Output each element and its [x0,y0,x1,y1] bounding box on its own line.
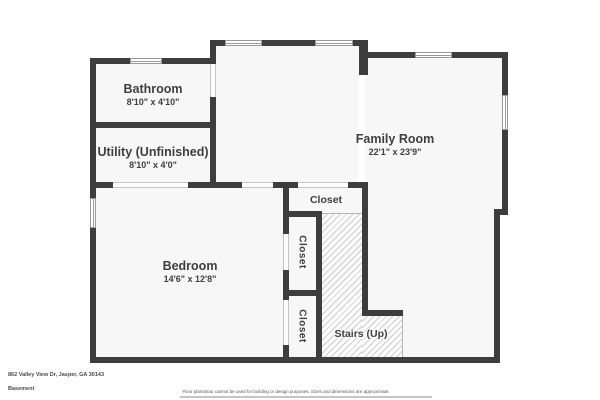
disclaimer-text: Floor plans/tour cannot be used for buil… [182,389,389,394]
family-room-label: Family Room [356,132,435,146]
closet-bottom-label: Closet [297,309,308,343]
bathroom-label: Bathroom [123,82,182,96]
wall-bottom [90,357,500,363]
stairs-label: Stairs (Up) [334,328,387,340]
closet-top-label: Closet [310,194,342,206]
family-room-floor-upper-right [365,56,505,186]
window-family-top [415,52,452,58]
wall-stairs-right [362,182,368,316]
wall-bedroom-top-seg2 [188,182,242,188]
bedroom-dims: 14'6" x 12'8" [164,274,217,284]
window-bump-right [315,40,353,46]
family-room-floor-upper-left [216,44,358,184]
wall-bath-utility-divider [90,122,216,128]
bedroom-floor [94,186,286,360]
floor-plan-canvas: Bathroom 8'10" x 4'10" Utility (Unfinish… [0,0,600,400]
opening-closet-top [298,182,348,188]
opening-bedroom-door [242,182,273,188]
window-bathroom [130,58,162,64]
family-room-dims: 22'1" x 23'9" [369,147,422,157]
opening-closet-bottom [283,300,289,345]
closet-middle-label: Closet [297,235,308,269]
window-bump-left [225,40,262,46]
wall-stairs-step [362,310,403,316]
bathroom-dims: 8'10" x 4'10" [127,97,180,107]
wall-bedroom-top-seg1 [90,182,113,188]
wall-closet-divider [283,290,322,296]
wall-right-upper [502,52,508,213]
opening-closet-middle [283,234,289,270]
opening-bathroom-family [210,64,216,97]
bedroom-label: Bedroom [163,259,218,273]
wall-stairs-left [316,211,322,357]
wall-right-lower [494,209,500,363]
wall-bath-right-lower [210,97,216,188]
opening-utility-bedroom [113,182,188,188]
wall-bedroom-right-seg3 [283,345,289,363]
floor-level-label: Basement [8,386,34,392]
property-address: 862 Valley View Dr, Jasper, GA 30143 [8,372,104,378]
footer-fine-print-line [180,396,432,398]
wall-bedroom-right-seg1 [283,182,289,234]
utility-label: Utility (Unfinished) [97,145,208,159]
window-bedroom-left [90,198,96,228]
utility-dims: 8'10" x 4'0" [129,160,177,170]
window-family-right [502,95,508,130]
